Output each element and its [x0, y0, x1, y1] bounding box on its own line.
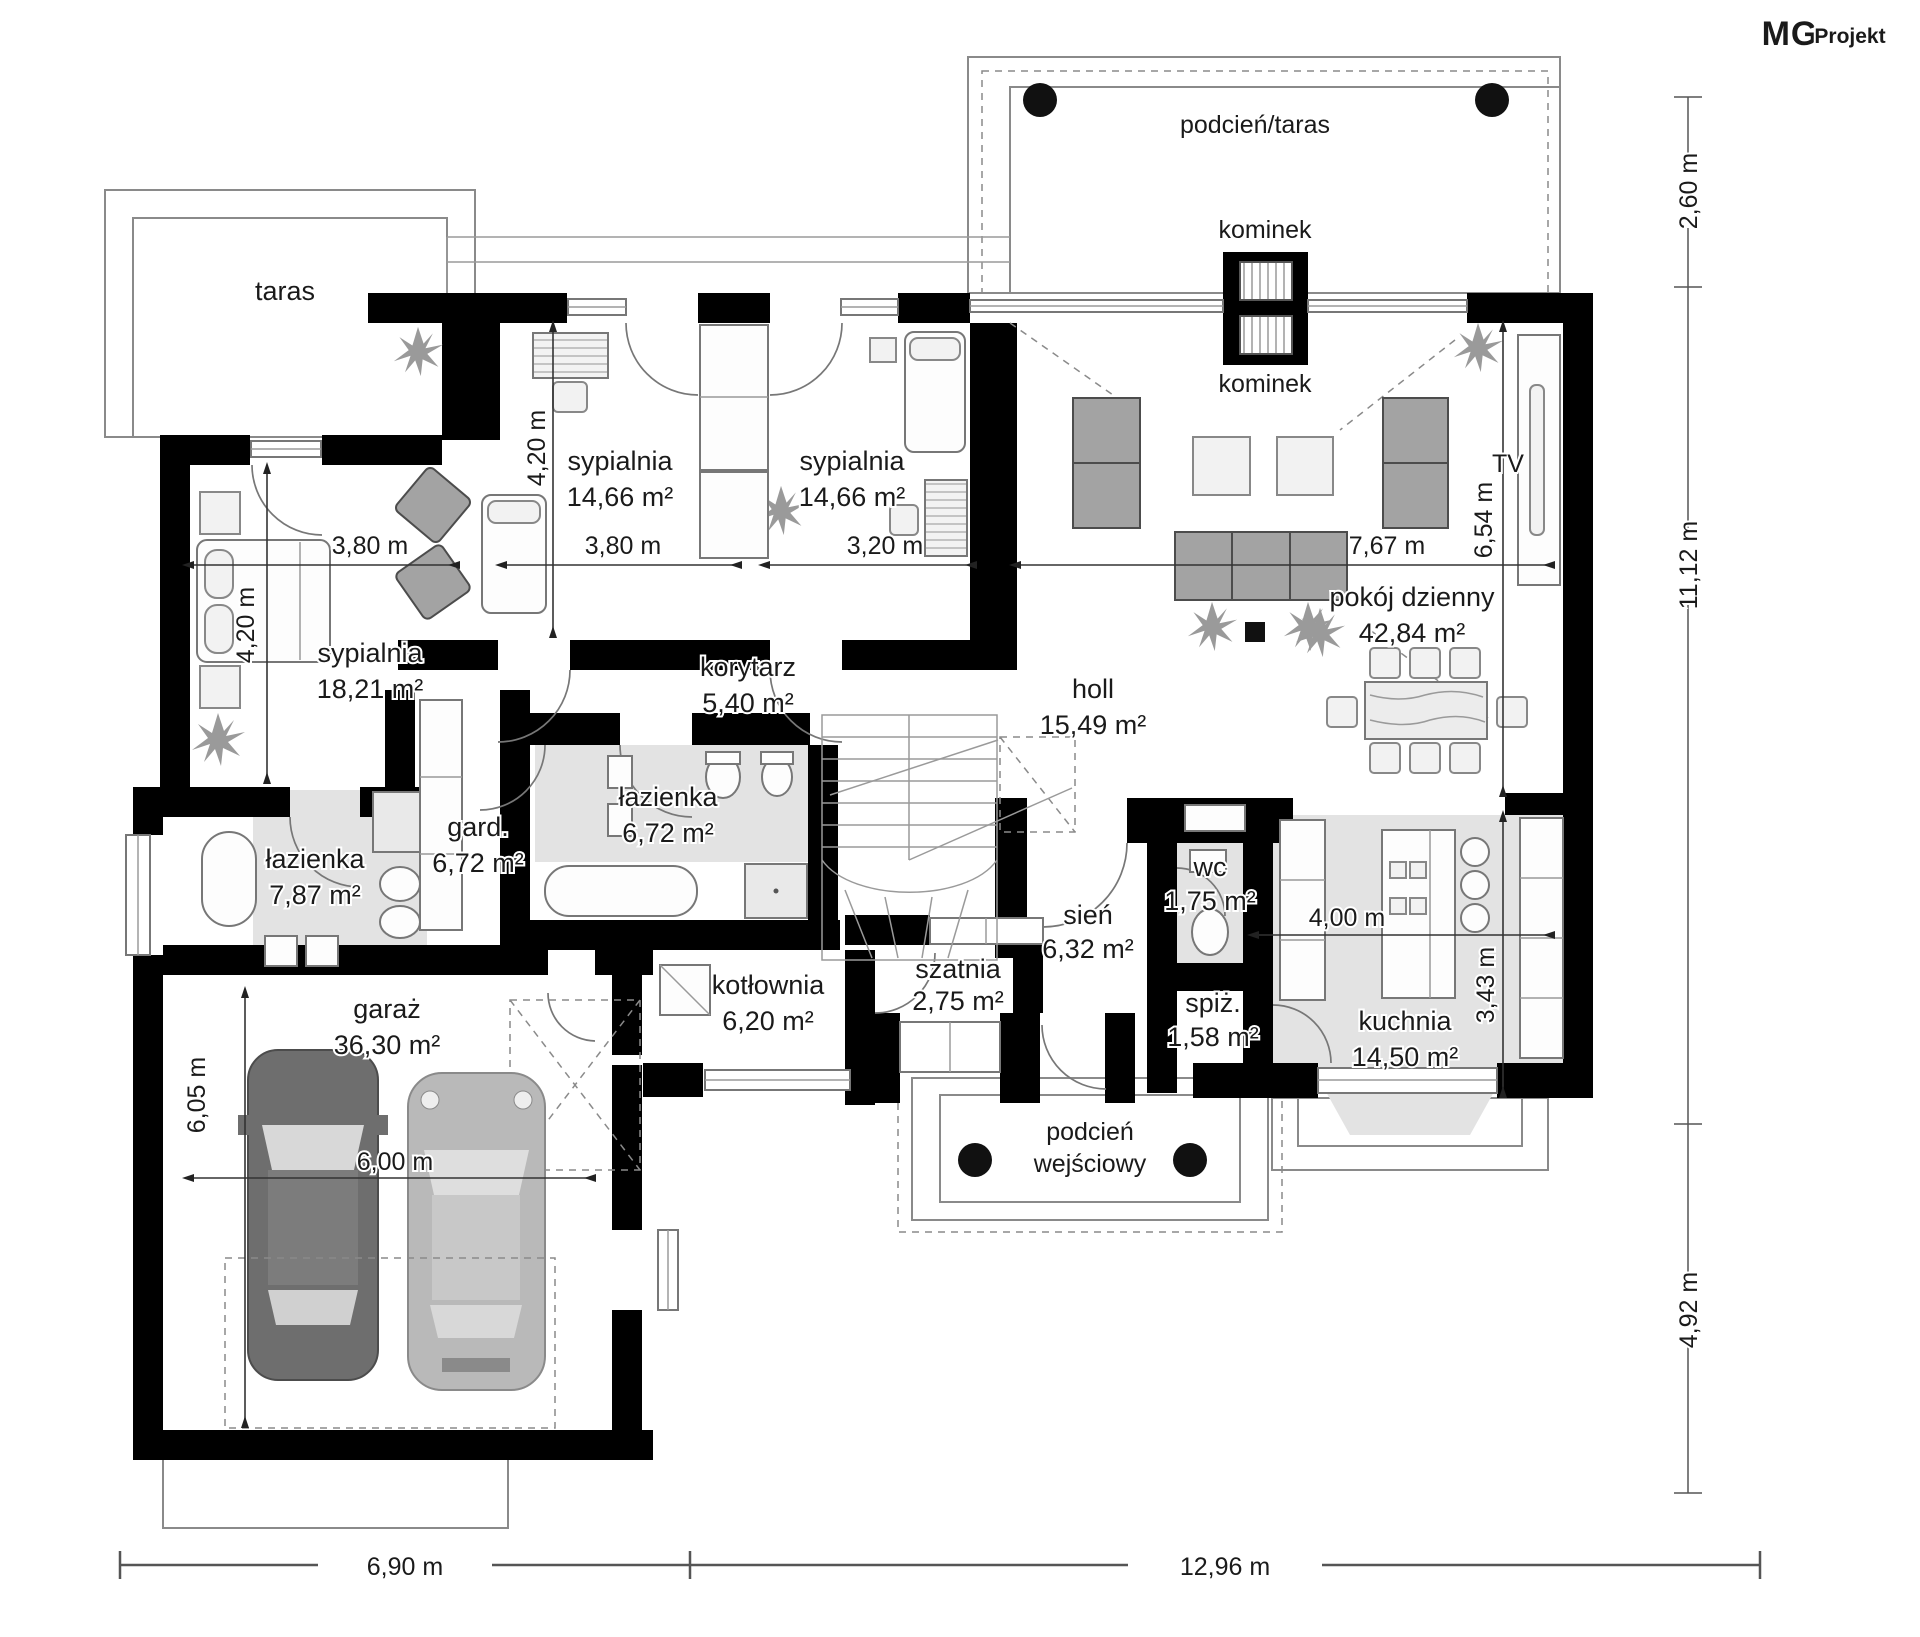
- chair: [1497, 697, 1527, 727]
- car-light: [408, 1073, 545, 1390]
- wardrobe: [533, 333, 608, 378]
- column: [1475, 83, 1509, 117]
- dim-12-96: 12,96 m: [1180, 1553, 1270, 1581]
- column: [958, 1143, 992, 1177]
- plant-icon: [1188, 602, 1237, 651]
- dim-4-20-b: 4,20 m: [523, 410, 551, 486]
- boiler-room-furniture: [660, 965, 710, 1015]
- dim-6-05: 6,05 m: [183, 1057, 211, 1133]
- room-label-sypialnia14a-area: 14,66 m²: [567, 482, 674, 512]
- bedroom-closets: [700, 325, 768, 558]
- dim-3-80-a: 3,80 m: [332, 532, 408, 560]
- plant-icon: [192, 713, 245, 766]
- room-label-holl-name: holl: [1072, 674, 1114, 704]
- floor-plan-page: MG Projekt taras podcień/taras kominek k…: [0, 0, 1920, 1637]
- dim-6-90: 6,90 m: [367, 1553, 443, 1581]
- room-label-kuchnia-name: kuchnia: [1358, 1006, 1452, 1036]
- floor-plan-drawing: MG Projekt taras podcień/taras kominek k…: [0, 0, 1920, 1637]
- chair: [1410, 648, 1440, 678]
- dim-11-12: 11,12 m: [1675, 521, 1703, 609]
- dim-6-54: 6,54 m: [1470, 482, 1498, 558]
- room-label-holl-area: 15,49 m²: [1040, 710, 1147, 740]
- logo-projekt: Projekt: [1814, 25, 1885, 48]
- plant-icon: [394, 327, 443, 376]
- shower: [373, 792, 427, 852]
- room-label-lazienka672-name: łazienka: [618, 782, 718, 812]
- bidet: [380, 906, 420, 938]
- label-podcien-taras: podcień/taras: [1180, 111, 1330, 139]
- room-label-kotlownia-name: kotłownia: [712, 970, 826, 1000]
- coffee-table: [1277, 437, 1333, 495]
- room-label-sypialnia14a-name: sypialnia: [567, 446, 673, 476]
- room-label-lazienka672-area: 6,72 m²: [622, 818, 714, 848]
- label-tv: TV: [1492, 450, 1524, 478]
- dim-4-00: 4,00 m: [1309, 904, 1385, 932]
- stool: [1461, 871, 1489, 899]
- label-kominek-bottom: kominek: [1218, 370, 1312, 398]
- room-label-sypialnia18-name: sypialnia: [317, 638, 423, 668]
- dim-3-80-b: 3,80 m: [585, 532, 661, 560]
- chair: [1370, 743, 1400, 773]
- dining-table: [1365, 682, 1487, 739]
- bathtub: [545, 866, 697, 916]
- dim-6-00: 6,00 m: [357, 1148, 433, 1176]
- room-label-lazienka787-name: łazienka: [265, 844, 365, 874]
- room-label-korytarz-name: korytarz: [700, 652, 796, 682]
- dim-4-92: 4,92 m: [1675, 1272, 1703, 1348]
- room-label-pokoj-name: pokój dzienny: [1329, 582, 1495, 612]
- coffee-table: [1193, 437, 1250, 495]
- chair: [1327, 697, 1357, 727]
- room-label-spiz-area: 1,58 m²: [1167, 1022, 1259, 1052]
- dim-2-60: 2,60 m: [1675, 153, 1703, 229]
- chair: [1370, 648, 1400, 678]
- room-label-pokoj-area: 42,84 m²: [1359, 618, 1466, 648]
- label-podcien-wejsciowy-1: podcień: [1046, 1118, 1134, 1146]
- chair: [1450, 743, 1480, 773]
- plant-icon: [1454, 323, 1503, 372]
- chair: [553, 382, 587, 412]
- room-label-wc-name: wc: [1193, 852, 1227, 882]
- room-label-szatnia-area: 2,75 m²: [912, 986, 1004, 1016]
- room-label-garaz-area: 36,30 m²: [334, 1030, 441, 1060]
- chair: [1450, 648, 1480, 678]
- desk: [925, 480, 967, 556]
- room-label-gard-area: 6,72 m²: [432, 848, 524, 878]
- room-label-lazienka787-area: 7,87 m²: [269, 880, 361, 910]
- room-label-szatnia-name: szatnia: [915, 954, 1002, 984]
- garage-apron: [163, 1460, 508, 1528]
- room-label-spiz-name: spiż.: [1185, 988, 1241, 1018]
- bathtub: [202, 832, 256, 926]
- nightstand: [200, 492, 240, 534]
- dim-3-20: 3,20 m: [847, 532, 923, 560]
- column: [1173, 1143, 1207, 1177]
- toilet: [380, 867, 420, 901]
- room-label-korytarz-area: 5,40 m²: [702, 688, 794, 718]
- room-label-gard-name: gard.: [447, 812, 509, 842]
- room-label-sypialnia14b-name: sypialnia: [799, 446, 905, 476]
- washbasin: [265, 936, 297, 966]
- room-label-sypialnia14b-area: 14,66 m²: [799, 482, 906, 512]
- post: [1245, 622, 1265, 642]
- chair: [1410, 743, 1440, 773]
- logo-mg: MG: [1762, 15, 1819, 53]
- nightstand: [870, 338, 896, 362]
- label-kominek-top: kominek: [1218, 216, 1312, 244]
- label-taras: taras: [255, 276, 315, 306]
- room-label-sypialnia18-area: 18,21 m²: [317, 674, 424, 704]
- washbasin: [306, 936, 338, 966]
- bedroom-14b-furniture: [757, 332, 967, 556]
- radiator: [1185, 805, 1245, 831]
- nightstand: [200, 666, 240, 708]
- tv-screen: [1530, 385, 1544, 535]
- room-label-ku-area: 14,50 m²: [1352, 1042, 1459, 1072]
- column: [1023, 83, 1057, 117]
- room-label-sien-area: 6,32 m²: [1042, 934, 1134, 964]
- sofa: [1175, 532, 1347, 600]
- car-dark: [238, 1050, 388, 1380]
- room-label-kotlownia-area: 6,20 m²: [722, 1006, 814, 1036]
- dim-4-20-a: 4,20 m: [232, 587, 260, 663]
- room-label-wc-area: 1,75 m²: [1164, 886, 1256, 916]
- dim-7-67: 7,67 m: [1349, 532, 1425, 560]
- label-podcien-wejsciowy-2: wejściowy: [1033, 1150, 1147, 1178]
- room-label-garaz-name: garaż: [353, 994, 421, 1024]
- room-label-sien-name: sień: [1063, 900, 1113, 930]
- stool: [1461, 904, 1489, 932]
- stool: [1461, 838, 1489, 866]
- roof-overhang-lines: [447, 237, 1010, 293]
- dim-3-43: 3,43 m: [1472, 947, 1500, 1023]
